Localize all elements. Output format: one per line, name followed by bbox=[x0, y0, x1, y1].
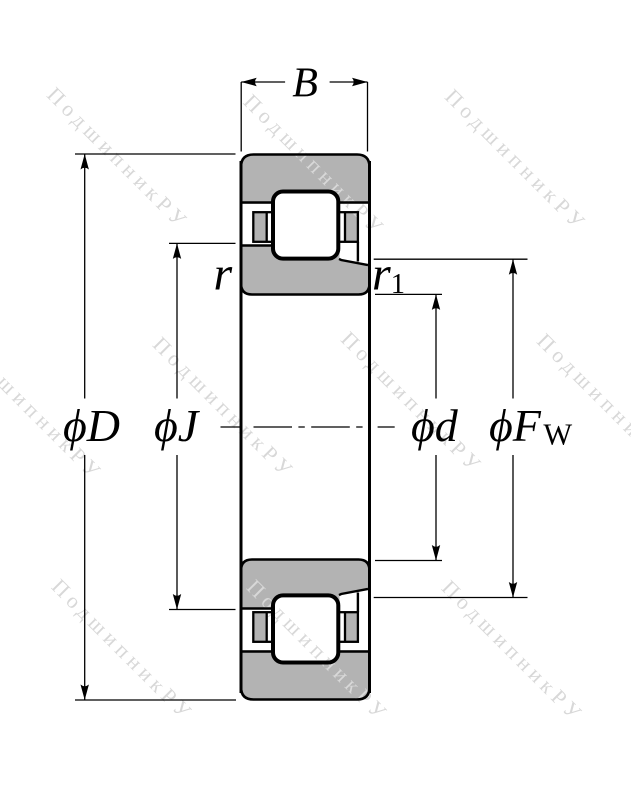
svg-text:ϕd: ϕd bbox=[411, 400, 459, 451]
svg-text:ϕD: ϕD bbox=[63, 400, 120, 451]
svg-text:ϕJ: ϕJ bbox=[154, 400, 201, 451]
svg-text:r: r bbox=[214, 248, 233, 301]
svg-text:B: B bbox=[292, 61, 318, 107]
